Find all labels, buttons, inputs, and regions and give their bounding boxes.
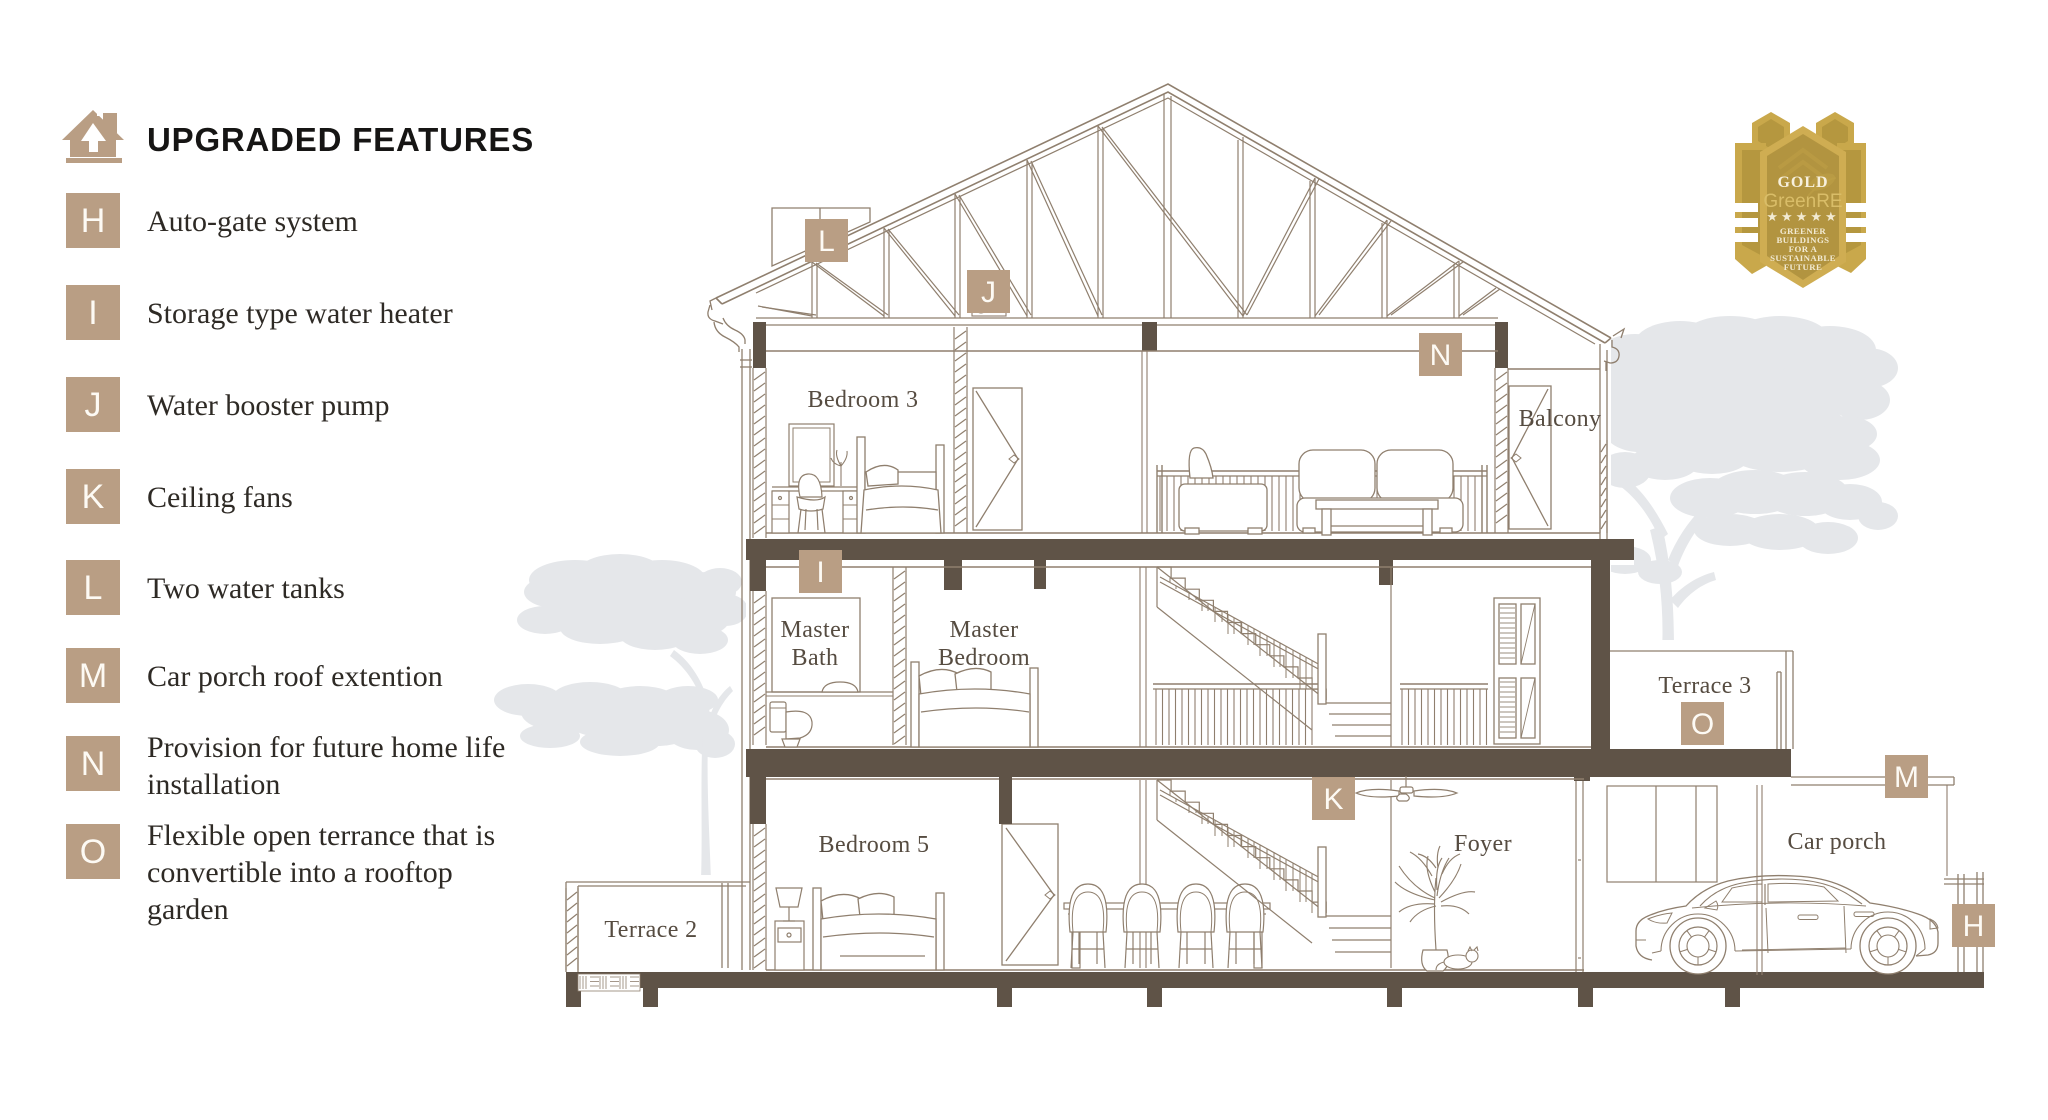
svg-text:Provision for future home life: Provision for future home life — [147, 731, 505, 764]
svg-text:H: H — [81, 202, 106, 240]
svg-text:convertible into a rooftop: convertible into a rooftop — [147, 856, 453, 889]
svg-text:I: I — [88, 294, 97, 332]
svg-text:H: H — [1963, 910, 1985, 943]
svg-text:Water booster pump: Water booster pump — [147, 389, 390, 422]
svg-text:M: M — [79, 657, 107, 695]
svg-text:GOLD: GOLD — [1777, 174, 1828, 191]
svg-text:FUTURE: FUTURE — [1784, 262, 1823, 272]
svg-text:Car porch roof extention: Car porch roof extention — [147, 660, 443, 693]
svg-text:J: J — [85, 386, 102, 424]
svg-text:Ceiling fans: Ceiling fans — [147, 481, 293, 514]
svg-text:installation: installation — [147, 768, 280, 801]
svg-text:O: O — [1691, 708, 1714, 741]
svg-text:K: K — [1323, 783, 1343, 816]
svg-text:Bath: Bath — [792, 645, 839, 671]
svg-text:Bedroom 3: Bedroom 3 — [808, 387, 919, 413]
svg-text:Terrace 2: Terrace 2 — [604, 917, 697, 943]
svg-text:N: N — [81, 745, 106, 783]
svg-text:L: L — [84, 569, 103, 607]
svg-text:Auto-gate system: Auto-gate system — [147, 205, 358, 238]
svg-text:Master: Master — [780, 617, 849, 643]
svg-text:garden: garden — [147, 893, 229, 926]
svg-text:N: N — [1430, 339, 1452, 372]
svg-text:Bedroom 5: Bedroom 5 — [819, 832, 930, 858]
svg-text:K: K — [82, 478, 105, 516]
svg-text:I: I — [816, 556, 824, 589]
svg-text:L: L — [818, 225, 835, 258]
svg-text:Balcony: Balcony — [1519, 406, 1602, 432]
svg-text:UPGRADED FEATURES: UPGRADED FEATURES — [147, 121, 534, 158]
svg-text:Terrace 3: Terrace 3 — [1658, 673, 1751, 699]
svg-text:M: M — [1894, 761, 1919, 794]
svg-text:Flexible open terrance that is: Flexible open terrance that is — [147, 819, 495, 852]
svg-text:Storage type water heater: Storage type water heater — [147, 297, 453, 330]
svg-text:O: O — [80, 833, 106, 871]
svg-text:Foyer: Foyer — [1454, 831, 1512, 857]
svg-text:Car porch: Car porch — [1788, 829, 1887, 855]
svg-text:★★★★★: ★★★★★ — [1766, 209, 1839, 224]
svg-text:Master: Master — [949, 617, 1018, 643]
svg-text:J: J — [981, 276, 996, 309]
svg-text:Two water tanks: Two water tanks — [147, 572, 345, 605]
svg-text:Bedroom: Bedroom — [938, 645, 1030, 671]
